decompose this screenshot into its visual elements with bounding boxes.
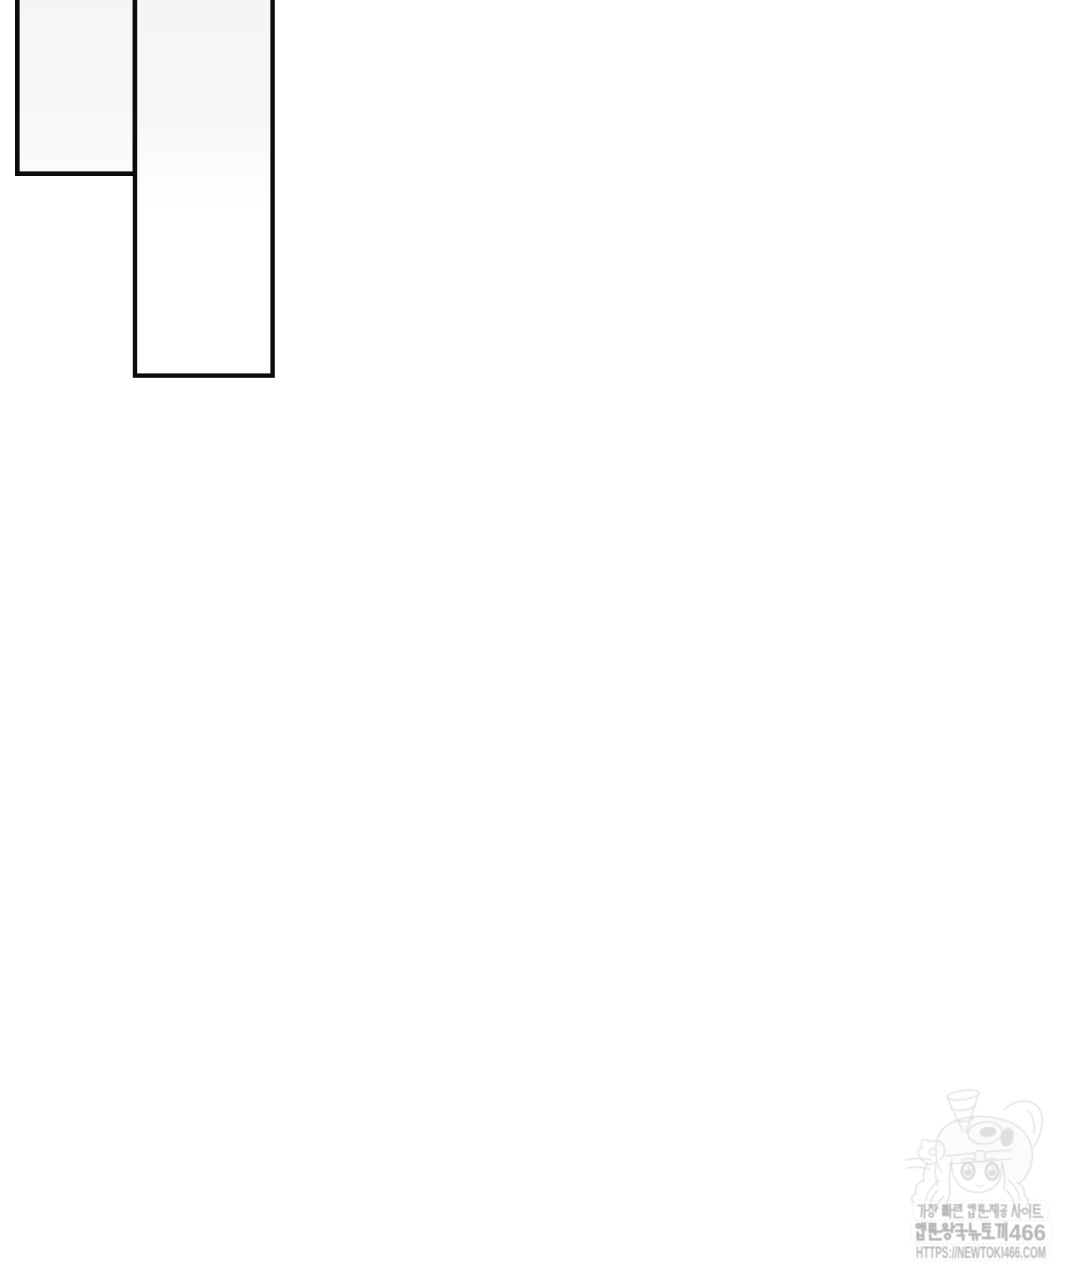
svg-text:466: 466 <box>1009 1220 1046 1246</box>
svg-text:HTTPS://NEWTOKI466.COM: HTTPS://NEWTOKI466.COM <box>916 1244 1046 1262</box>
